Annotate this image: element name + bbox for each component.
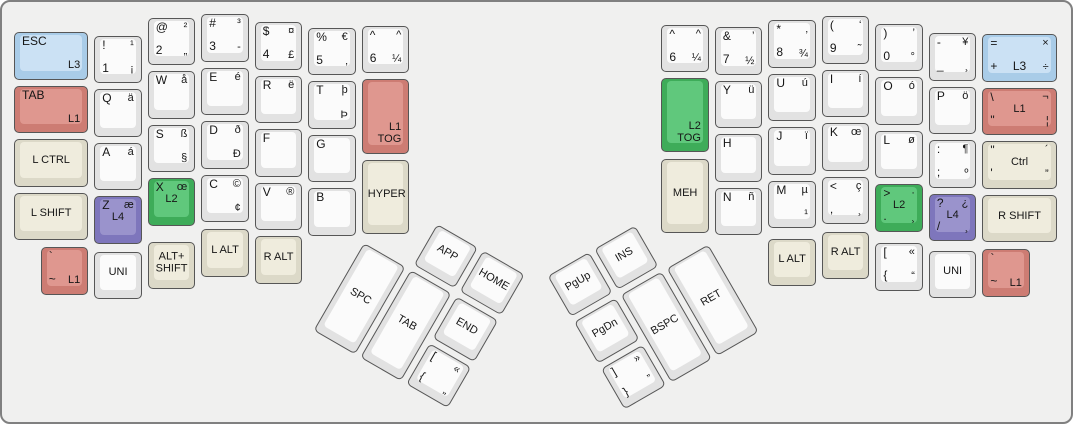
key-legend-tl: K (830, 126, 838, 139)
key-lctrl[interactable]: L CTRL (14, 139, 88, 187)
key-legend-tr: ’ (752, 30, 754, 42)
key-legend-tr: ñ (748, 191, 754, 203)
key-legend-br: „ (184, 45, 188, 57)
keycap: Eé (207, 71, 243, 107)
key-legend-ce: RET (693, 284, 730, 312)
keycap: L1 TOG (368, 82, 404, 144)
key-legend-br: ¼ (692, 52, 701, 64)
keycap: TþÞ (314, 84, 350, 120)
key-legend-tl: M (776, 184, 786, 197)
key-legend-ce: UNI (935, 265, 971, 277)
key-o[interactable]: Oó (875, 77, 923, 125)
key-legend-ce: ALT+ SHIFT (154, 250, 190, 275)
keycap: [«{„ (416, 348, 464, 396)
key-6-left[interactable]: ^^6¼ (362, 26, 410, 74)
key-legend-ce: L2 (154, 193, 190, 205)
key-legend-ce: PgDn (586, 314, 623, 342)
key-7[interactable]: &’7½ (715, 27, 763, 75)
keycap: `~L1 (47, 250, 83, 286)
keycap: `~L1 (988, 252, 1024, 288)
keycap: Yü (721, 84, 757, 120)
key-comma[interactable]: <ç,¸ (822, 177, 870, 225)
keycap: Uú (774, 77, 810, 113)
key-legend-ce: END (448, 312, 485, 340)
key-legend-tl: B (316, 191, 324, 204)
key-legend-tl: [ (883, 246, 886, 259)
key-legend-ce: L ALT (207, 244, 243, 256)
keycap: PgUp (554, 258, 602, 306)
key-legend-ce: INS (606, 241, 643, 269)
key-legend-ce: R ALT (261, 251, 297, 263)
key-legend-br: L1 TOG (378, 121, 402, 146)
key-6-right[interactable]: ^^6¼ (661, 25, 709, 73)
key-legend-tl: J (776, 130, 782, 143)
keycap: Ií (828, 73, 864, 109)
key-n[interactable]: Nñ (715, 188, 763, 236)
key-hyper[interactable]: HYPER (362, 160, 410, 234)
key-legend-bl: ~ (49, 273, 56, 286)
key-legend-ce: PgUp (560, 268, 597, 296)
key-legend-bl: 4 (263, 48, 270, 61)
keycap: #³3- (207, 17, 243, 53)
keycap: H (721, 137, 757, 173)
keycap: ^^6¼ (667, 28, 703, 64)
key-1[interactable]: !¹1¡ (94, 36, 142, 84)
key-legend-bl: 8 (776, 46, 783, 59)
key-legend-tl: ^ (370, 29, 376, 42)
key-legend-bl: " (990, 114, 994, 127)
key-legend-tl: G (316, 138, 325, 151)
key-legend-tl: R (263, 79, 272, 92)
key-legend-br: „ (441, 384, 450, 396)
key-legend-bl: ' (990, 167, 992, 180)
key-legend-tr: ï (805, 130, 808, 142)
key-legend-tl: ^ (669, 28, 675, 41)
keycap: TABL1 (20, 89, 82, 125)
key-lshift[interactable]: L SHIFT (14, 193, 88, 241)
key-ralt-right[interactable]: R ALT (822, 232, 870, 280)
keycap: HYPER (368, 163, 404, 225)
key-period-l2[interactable]: >·.¸L2 (875, 184, 923, 232)
key-s[interactable]: Sß§ (148, 125, 196, 173)
keycap: ]»}” (607, 350, 655, 398)
key-legend-ce: L4 (100, 211, 136, 223)
key-legend-tr: ß (181, 128, 188, 140)
keycap: \¬"¦L1 (988, 91, 1050, 127)
keycap: UNI (100, 255, 136, 291)
key-legend-tl: I (830, 73, 833, 86)
key-rshift[interactable]: R SHIFT (982, 195, 1056, 243)
key-legend-br: - (237, 41, 241, 53)
keycap: MEH (667, 162, 703, 224)
keycap: !¹1¡ (100, 39, 136, 75)
key-legend-tl: Y (723, 84, 731, 97)
key-q[interactable]: Qä (94, 89, 142, 137)
key-legend-ce: R SHIFT (988, 209, 1050, 221)
key-legend-bl: 3 (209, 40, 216, 53)
key-8[interactable]: *‚8¾ (768, 20, 816, 68)
keycap: ?¿/¸L4 (935, 197, 971, 233)
keycap: Sß§ (154, 128, 190, 164)
keycap: END (443, 302, 491, 350)
key-slash-l4[interactable]: ?¿/¸L4 (929, 194, 977, 242)
key-t[interactable]: TþÞ (308, 81, 356, 129)
key-g[interactable]: G (308, 135, 356, 183)
key-legend-tl: < (830, 180, 837, 193)
key-legend-br: ¼ (392, 53, 401, 65)
key-legend-ce: Ctrl (988, 156, 1050, 168)
key-legend-tl: TAB (22, 89, 44, 102)
keycap: L ALT (774, 242, 810, 278)
key-legend-tl: V (263, 186, 271, 199)
key-legend-bl: . (883, 210, 886, 223)
key-legend-tl: Q (102, 92, 111, 105)
keycap: Lø (881, 134, 917, 170)
key-lalt-left[interactable]: L ALT (201, 229, 249, 277)
key-legend-tr: þ (342, 84, 348, 96)
key-z-l4[interactable]: ZæL4 (94, 196, 142, 244)
keycap: DðÐ (207, 124, 243, 160)
key-grave-l1-right[interactable]: `~L1 (982, 249, 1030, 297)
key-h[interactable]: H (715, 134, 763, 182)
key-legend-tr: ^ (396, 29, 401, 41)
key-legend-br: L1 (1010, 277, 1022, 289)
key-legend-tr: « (451, 362, 462, 376)
keycap: =×+÷L3 (988, 37, 1050, 73)
key-legend-tr: œ (177, 181, 187, 193)
key-v[interactable]: V® (255, 183, 303, 231)
key-legend-tr: ® (286, 186, 294, 198)
key-legend-tr: ¹ (130, 39, 134, 51)
key-legend-br: “ (911, 270, 915, 282)
keycap: L ALT (207, 232, 243, 268)
key-legend-ce: L SHIFT (20, 207, 82, 219)
key-legend-bl: 6 (370, 52, 377, 65)
key-legend-tl: C (209, 178, 218, 191)
keycap: *‚8¾ (774, 23, 810, 59)
key-legend-br: ¸ (858, 204, 862, 216)
key-legend-bl: 6 (669, 51, 676, 64)
keycap: (‘9˜ (828, 19, 864, 55)
keycap: $¤4£ (261, 25, 297, 61)
keycap: ESCL3 (20, 35, 82, 71)
keycap: PgDn (581, 304, 629, 352)
key-legend-br: ” (1045, 168, 1049, 180)
key-legend-tl: ) (883, 27, 887, 40)
key-legend-br: ¡ (130, 63, 134, 75)
key-legend-tl: A (102, 146, 110, 159)
key-legend-tr: ¿ (962, 197, 969, 209)
key-lbracket-right[interactable]: [«{“ (875, 243, 923, 291)
key-legend-bc: L3 (988, 60, 1050, 73)
key-u[interactable]: Uú (768, 74, 816, 122)
key-semicolon[interactable]: :¶;º (929, 140, 977, 188)
key-legend-br: L3 (68, 59, 80, 71)
key-legend-br: ¸ (911, 211, 915, 223)
key-backslash-l1[interactable]: \¬"¦L1 (982, 88, 1056, 136)
keycap: -¥_¸ (935, 36, 971, 72)
key-j[interactable]: Jï (768, 127, 816, 175)
key-legend-bl: _ (937, 59, 944, 72)
key-legend-br: ¢ (235, 202, 241, 214)
key-legend-bl: } (621, 385, 631, 399)
keycap: INS (600, 231, 648, 279)
key-y[interactable]: Yü (715, 81, 763, 129)
keycap: Mµ¹ (774, 184, 810, 220)
key-legend-tr: ¤ (288, 25, 294, 37)
key-legend-tr: ² (184, 21, 188, 33)
key-legend-tr: € (342, 31, 348, 43)
key-legend-tr: ´ (1045, 144, 1049, 156)
key-legend-br: £ (288, 49, 294, 61)
key-legend-br: ¾ (799, 48, 808, 60)
key-legend-ce: L CTRL (20, 154, 82, 166)
keycap: APP (423, 229, 471, 277)
key-legend-tr: © (233, 178, 241, 190)
keycap: F (261, 132, 297, 168)
key-quote-ctrl[interactable]: "´'”Ctrl (982, 141, 1056, 189)
key-legend-tl: - (937, 36, 941, 49)
key-legend-tl: [ (429, 349, 439, 362)
keycap: Wå (154, 74, 190, 110)
key-legend-br: ¸ (965, 60, 969, 72)
key-legend-tr: « (909, 246, 915, 258)
key-legend-tl: W (156, 74, 167, 87)
key-legend-br: ° (910, 51, 914, 63)
key-k[interactable]: Kœ (822, 123, 870, 171)
key-legend-tr: ó (909, 80, 915, 92)
key-legend-ce: APP (429, 239, 466, 267)
key-legend-br: L1 (68, 274, 80, 286)
key-a[interactable]: Aá (94, 143, 142, 191)
keycap: <ç,¸ (828, 180, 864, 216)
key-legend-bl: { (417, 369, 427, 383)
key-legend-tl: @ (156, 21, 168, 34)
key-legend-bl: 1 (102, 62, 109, 75)
key-legend-bl: ; (937, 166, 940, 179)
keycap: Jï (774, 130, 810, 166)
key-legend-br: L2 TOG (677, 120, 701, 145)
key-legend-tl: O (883, 80, 892, 93)
keycap: %€5‚ (314, 31, 350, 67)
key-legend-tl: ` (49, 250, 53, 263)
key-legend-bl: 7 (723, 53, 730, 66)
keycap: C©¢ (207, 178, 243, 214)
key-legend-br: º (964, 167, 968, 179)
key-legend-tr: ë (288, 79, 294, 91)
key-0[interactable]: )’0° (875, 24, 923, 72)
key-legend-ce: BSPC (646, 310, 683, 338)
keycap: )’0° (881, 27, 917, 63)
key-legend-bl: 5 (316, 54, 323, 67)
key-legend-tr: ¬ (1042, 91, 1048, 103)
key-e[interactable]: Eé (201, 68, 249, 116)
keycap: R SHIFT (988, 198, 1050, 234)
key-uni-left[interactable]: UNI (94, 252, 142, 300)
key-legend-ce: MEH (667, 186, 703, 198)
key-l2-tog[interactable]: L2 TOG (661, 78, 709, 152)
key-legend-tr: ^ (696, 28, 701, 40)
key-uni-right[interactable]: UNI (929, 251, 977, 299)
key-legend-tr: ‚ (805, 23, 807, 35)
keycap: XœL2 (154, 181, 190, 217)
key-legend-tr: ç (856, 180, 862, 192)
key-legend-tl: ] (609, 365, 619, 378)
key-i[interactable]: Ií (822, 70, 870, 118)
key-legend-tl: & (723, 30, 731, 43)
key-legend-tr: × (1042, 37, 1048, 49)
key-legend-tl: L (883, 134, 890, 147)
key-legend-br: § (181, 152, 187, 164)
key-tab-l1[interactable]: TABL1 (14, 86, 88, 134)
key-3[interactable]: #³3- (201, 14, 249, 62)
key-alt-shift[interactable]: ALT+ SHIFT (148, 242, 196, 290)
key-legend-tr: æ (124, 199, 134, 211)
key-legend-br: ” (645, 372, 654, 384)
key-legend-br: ¸ (965, 221, 969, 233)
key-equals-l3[interactable]: =×+÷L3 (982, 34, 1056, 82)
key-legend-br: Þ (340, 109, 347, 121)
key-r[interactable]: Rë (255, 76, 303, 124)
key-legend-tr: ’ (912, 27, 914, 39)
key-w[interactable]: Wå (148, 71, 196, 119)
key-legend-ce: HOME (475, 266, 512, 294)
key-grave-l1-left[interactable]: `~L1 (41, 247, 89, 295)
key-legend-br: L1 (68, 113, 80, 125)
key-legend-tr: ð (235, 124, 241, 136)
keycap: Qä (100, 92, 136, 128)
key-legend-br: ½ (745, 55, 754, 67)
key-legend-tr: å (181, 74, 187, 86)
keycap: >·.¸L2 (881, 187, 917, 223)
key-legend-tr: á (128, 146, 134, 158)
key-legend-tr: í (858, 73, 861, 85)
key-legend-bl: ~ (990, 275, 997, 288)
keycap: G (314, 138, 350, 174)
keycap: UNI (935, 254, 971, 290)
key-legend-tl: T (316, 84, 323, 97)
key-legend-br: Ð (233, 148, 241, 160)
key-legend-tl: E (209, 71, 217, 84)
key-legend-tr: ¶ (962, 143, 968, 155)
key-legend-tl: ! (102, 39, 105, 52)
keycap: Rë (261, 79, 297, 115)
key-minus[interactable]: -¥_¸ (929, 33, 977, 81)
key-legend-tr: » (631, 351, 642, 365)
key-p[interactable]: Pö (929, 87, 977, 135)
key-lalt-right[interactable]: L ALT (768, 239, 816, 287)
key-legend-bl: , (830, 203, 833, 216)
key-legend-tl: U (776, 77, 785, 90)
keycap: ALT+ SHIFT (154, 245, 190, 281)
key-legend-tr: ü (748, 84, 754, 96)
keycap: Kœ (828, 126, 864, 162)
keycap: L2 TOG (667, 81, 703, 143)
keycap: Aá (100, 146, 136, 182)
key-legend-ce: L1 (988, 102, 1050, 114)
keycap: &’7½ (721, 30, 757, 66)
key-legend-bl: 9 (830, 42, 837, 55)
keycap: ^^6¼ (368, 29, 404, 65)
key-legend-br: ‚ (345, 55, 347, 67)
keycap: Oó (881, 80, 917, 116)
key-4[interactable]: $¤4£ (255, 22, 303, 70)
key-m[interactable]: Mµ¹ (768, 181, 816, 229)
key-x-l2[interactable]: XœL2 (148, 178, 196, 226)
keycap: L SHIFT (20, 196, 82, 232)
key-legend-bl: 0 (883, 50, 890, 63)
key-legend-ce: SPC (342, 282, 379, 310)
key-legend-tl: P (937, 90, 945, 103)
key-legend-tl: = (990, 37, 997, 50)
key-legend-ce: L ALT (774, 253, 810, 265)
key-legend-tr: · (911, 187, 915, 199)
key-l1-tog[interactable]: L1 TOG (362, 79, 410, 153)
keycap: B (314, 191, 350, 227)
key-legend-br: ¹ (804, 208, 808, 220)
keycap: :¶;º (935, 143, 971, 179)
keycap: "´'”Ctrl (988, 144, 1050, 180)
key-esc-l3[interactable]: ESCL3 (14, 32, 88, 80)
key-legend-bl: { (883, 269, 887, 282)
key-legend-tr: ö (962, 90, 968, 102)
key-legend-bl: 2 (156, 44, 163, 57)
key-f[interactable]: F (255, 129, 303, 177)
key-legend-tl: N (723, 191, 732, 204)
key-legend-tr: ø (908, 134, 915, 146)
keycap: Nñ (721, 191, 757, 227)
key-legend-tl: * (776, 23, 781, 36)
key-2[interactable]: @²2„ (148, 18, 196, 66)
key-5[interactable]: %€5‚ (308, 28, 356, 76)
keycap: HOME (469, 256, 517, 304)
key-legend-tr: µ (802, 184, 808, 196)
key-c[interactable]: C©¢ (201, 175, 249, 223)
keycap: V® (261, 186, 297, 222)
key-ralt-left[interactable]: R ALT (255, 236, 303, 284)
keycap: R ALT (261, 239, 297, 275)
key-meh[interactable]: MEH (661, 159, 709, 233)
keycap: R ALT (828, 235, 864, 271)
key-legend-ce: TAB (389, 309, 426, 337)
key-legend-tr: œ (851, 126, 861, 138)
keycap: L CTRL (20, 142, 82, 178)
key-legend-tl: $ (263, 25, 270, 38)
key-legend-ce: L4 (935, 208, 971, 220)
key-legend-ce: L2 (881, 199, 917, 211)
key-legend-ce: UNI (100, 266, 136, 278)
key-legend-tl: ` (990, 252, 994, 265)
key-l[interactable]: Lø (875, 131, 923, 179)
keycap: [«{“ (881, 246, 917, 282)
key-legend-br: ˜ (858, 43, 862, 55)
key-legend-ce: R ALT (828, 246, 864, 258)
key-d[interactable]: DðÐ (201, 121, 249, 169)
key-legend-tl: % (316, 31, 327, 44)
key-legend-tr: ¥ (962, 36, 968, 48)
key-legend-tr: ‘ (859, 19, 861, 31)
key-legend-tr: é (235, 71, 241, 83)
key-legend-tr: ä (128, 92, 134, 104)
key-9[interactable]: (‘9˜ (822, 16, 870, 64)
key-legend-tr: ³ (237, 17, 241, 29)
key-legend-ce: HYPER (368, 187, 404, 199)
key-b[interactable]: B (308, 188, 356, 236)
key-legend-bl: / (937, 220, 940, 233)
keyboard-case: ESCL3!¹1¡@²2„#³3-$¤4£%€5‚^^6¼TABL1QäWåEé… (0, 0, 1073, 424)
key-legend-br: ¦ (1046, 115, 1049, 127)
keycap: Pö (935, 90, 971, 126)
